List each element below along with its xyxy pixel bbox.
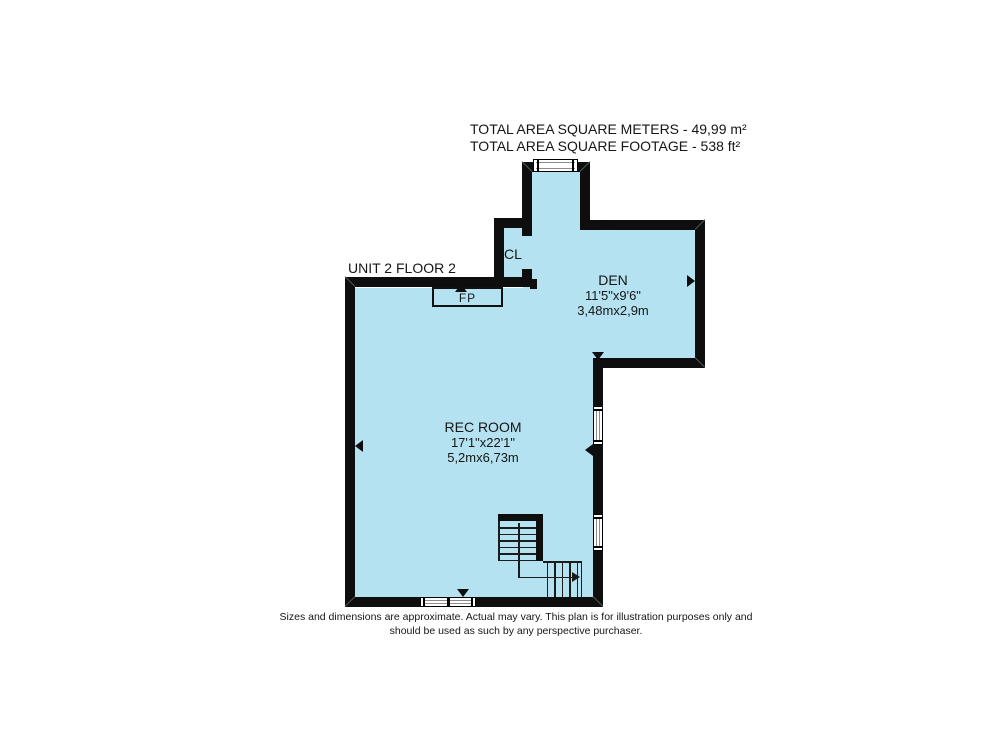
- wall-den-bottom: [593, 358, 705, 368]
- window-divider: [447, 598, 450, 606]
- wall-stair-mid: [536, 514, 543, 561]
- floorplan-canvas: TOTAL AREA SQUARE METERS - 49,99 m² TOTA…: [0, 0, 1000, 737]
- total-area-footage: TOTAL AREA SQUARE FOOTAGE - 538 ft²: [470, 138, 747, 155]
- window-rec-bottom: [420, 597, 476, 607]
- rec-room-label-block: REC ROOM 17'1"x22'1" 5,2mx6,73m: [413, 420, 553, 465]
- window-cap: [471, 598, 473, 606]
- stair-tread: [554, 561, 556, 597]
- marker-arrow-den-right: [687, 275, 695, 287]
- window-cap: [423, 598, 425, 606]
- window-cap: [594, 517, 602, 519]
- disclaimer-text: Sizes and dimensions are approximate. Ac…: [16, 611, 1000, 638]
- window-glass: [596, 517, 600, 548]
- total-area-meters: TOTAL AREA SQUARE METERS - 49,99 m²: [470, 121, 747, 138]
- stair-path: [518, 577, 573, 579]
- window-cap: [572, 160, 574, 171]
- den-dims-metric: 3,48mx2,9m: [543, 303, 683, 318]
- wall-rec-right: [593, 368, 603, 607]
- window-cap: [594, 409, 602, 411]
- window-glass: [536, 162, 575, 169]
- stair-tread: [562, 561, 564, 597]
- window-bay-top: [533, 159, 578, 172]
- marker-arrow-bottom-window: [457, 589, 469, 597]
- wall-bay-right: [580, 172, 590, 220]
- den-label-block: DEN 11'5"x9'6" 3,48mx2,9m: [543, 273, 683, 318]
- stair-tread: [498, 540, 536, 542]
- wall-left: [345, 277, 355, 597]
- floor-bay: [532, 172, 580, 230]
- stair-path: [518, 523, 520, 578]
- stair-tread: [569, 561, 571, 597]
- den-dims-imperial: 11'5"x9'6": [543, 288, 683, 303]
- closet-label: CL: [504, 246, 522, 262]
- wall-closet-left: [494, 218, 504, 287]
- wall-den-right: [695, 230, 705, 368]
- total-area-text: TOTAL AREA SQUARE METERS - 49,99 m² TOTA…: [470, 121, 747, 154]
- window-cap: [537, 160, 539, 171]
- disclaimer-line-1: Sizes and dimensions are approximate. Ac…: [16, 611, 1000, 625]
- marker-arrow-rec-left: [355, 440, 363, 452]
- door-jamb-hook: [530, 279, 537, 289]
- window-cap: [594, 546, 602, 548]
- disclaimer-line-2: should be used as such by any perspectiv…: [16, 625, 1000, 639]
- rec-room-dims-imperial: 17'1"x22'1": [413, 435, 553, 450]
- room-label-den: DEN: [543, 273, 683, 288]
- floor-closet-doorway: [522, 236, 532, 271]
- stair-tread: [498, 534, 536, 536]
- marker-arrow-den-bottom: [592, 352, 604, 360]
- window-rec-right-upper: [593, 406, 603, 445]
- wall-den-top: [580, 220, 705, 230]
- rec-room-dims-metric: 5,2mx6,73m: [413, 450, 553, 465]
- window-cap: [594, 440, 602, 442]
- marker-arrow-den-top: [601, 222, 613, 230]
- marker-arrow-rec-right: [585, 444, 593, 456]
- stair-tread: [498, 553, 536, 555]
- room-label-rec-room: REC ROOM: [413, 420, 553, 435]
- stair-direction-arrow: [572, 572, 580, 582]
- stair-tread: [498, 547, 536, 549]
- unit-floor-label: UNIT 2 FLOOR 2: [348, 260, 456, 276]
- window-glass: [596, 409, 600, 442]
- wall-closet-top: [494, 218, 532, 228]
- marker-arrow-fireplace: [455, 284, 467, 292]
- fireplace-box: FP: [432, 287, 503, 307]
- stair-tread: [498, 527, 536, 529]
- fireplace-label: FP: [434, 291, 501, 305]
- stair-border: [581, 561, 583, 597]
- window-rec-right-lower: [593, 514, 603, 551]
- floor-den-upper: [532, 230, 695, 277]
- stair-tread: [547, 561, 549, 597]
